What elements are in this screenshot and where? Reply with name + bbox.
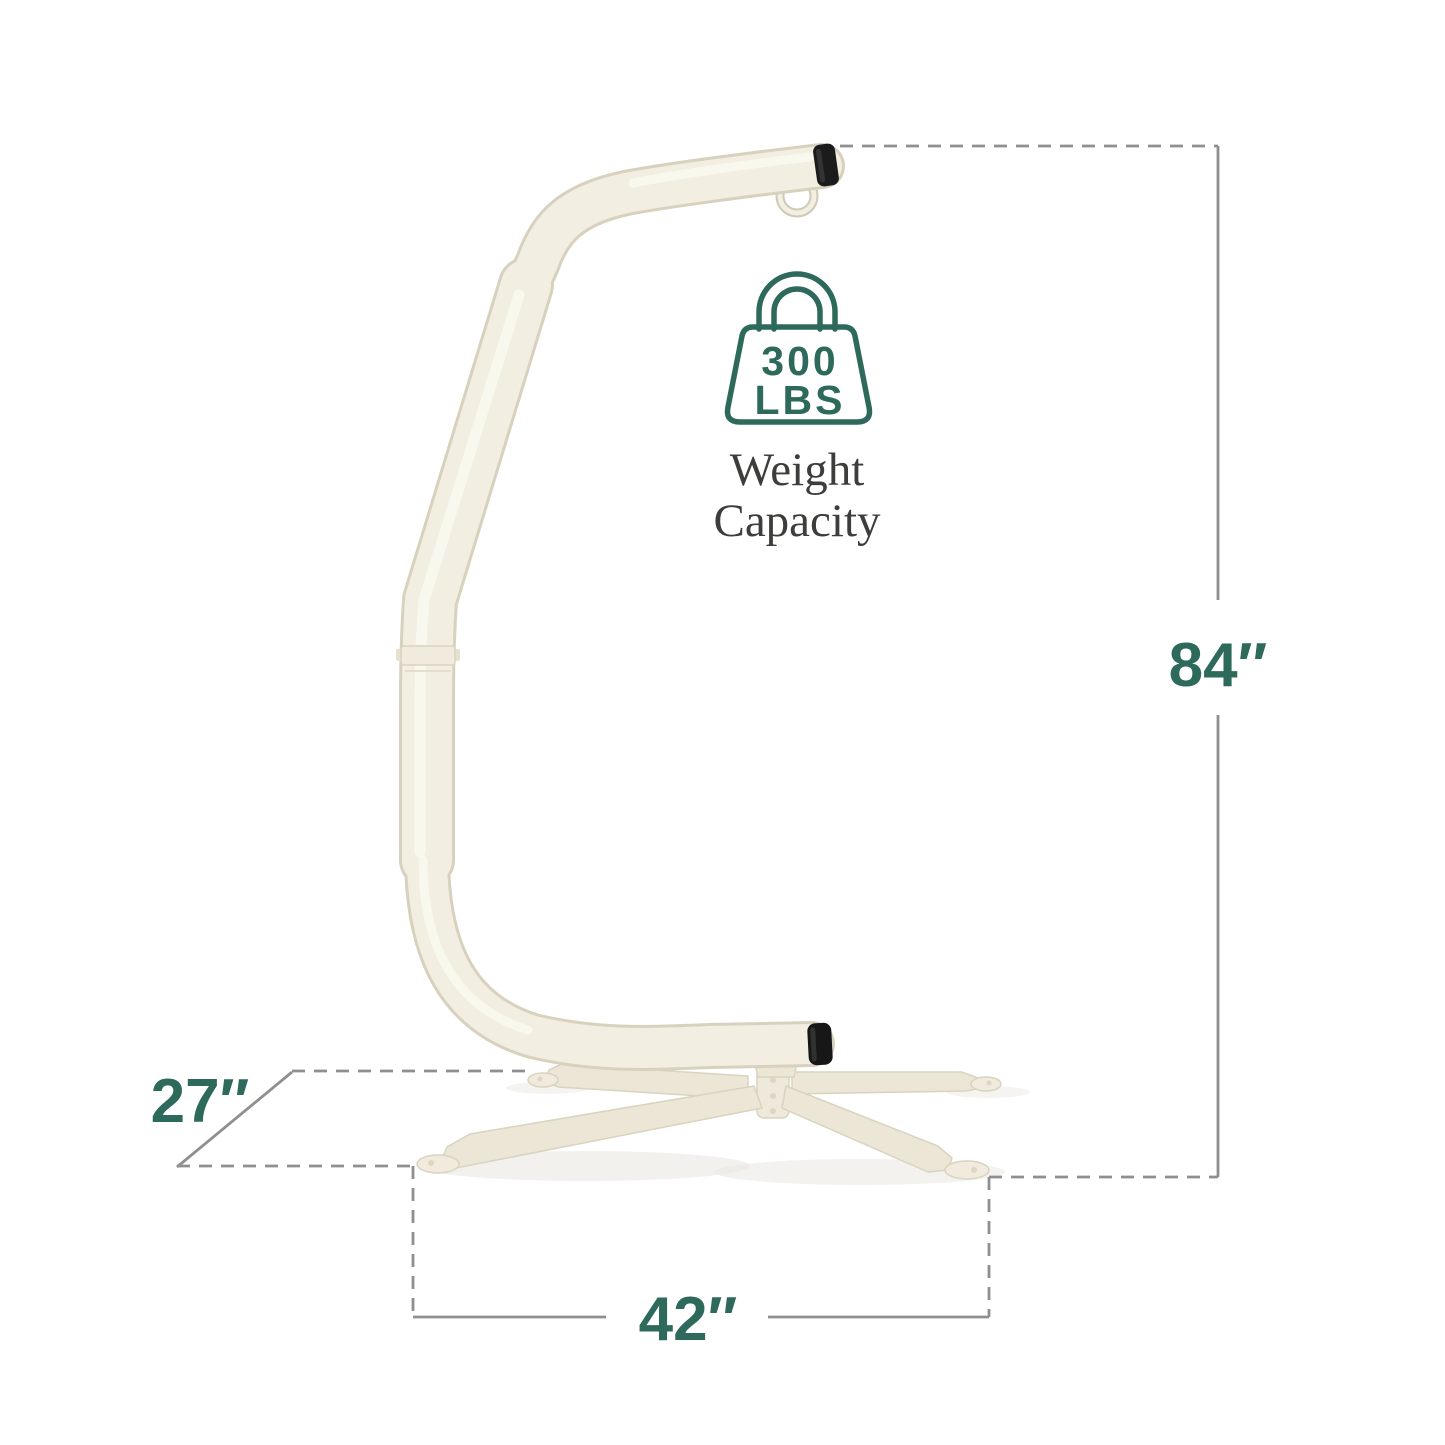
stand-frame xyxy=(420,157,822,1048)
caption-line-2: Capacity xyxy=(713,495,881,547)
foot-bolt-hole xyxy=(987,1081,992,1086)
foot-bolt-hole xyxy=(971,1167,977,1173)
c-stand-illustration xyxy=(396,143,1030,1185)
base-foot-pad xyxy=(945,1161,989,1179)
product-dimension-diagram: 84″ 42″ 27″ 300 LBS Weight xyxy=(0,0,1445,1445)
base-foot-pad xyxy=(528,1073,558,1087)
diagram-canvas: 84″ 42″ 27″ 300 LBS Weight xyxy=(0,0,1445,1445)
base-foot-pad xyxy=(971,1077,1001,1091)
base-foot-pad xyxy=(417,1155,459,1173)
bottom-end-cap xyxy=(807,1022,833,1065)
caption-line-1: Weight xyxy=(730,444,865,496)
height-dimension: 84″ xyxy=(840,146,1267,1177)
hub-bolt xyxy=(770,1108,776,1114)
width-dimension: 42″ xyxy=(413,1166,989,1354)
weight-capacity-badge: 300 LBS Weight Capacity xyxy=(713,274,881,547)
foot-bolt-hole xyxy=(538,1077,543,1082)
hub-bolt xyxy=(770,1077,776,1083)
foot-bolt-hole xyxy=(428,1160,434,1166)
width-label: 42″ xyxy=(639,1285,738,1354)
weight-unit: LBS xyxy=(755,377,846,423)
height-label: 84″ xyxy=(1169,631,1268,700)
depth-label: 27″ xyxy=(151,1067,250,1136)
base-leg xyxy=(792,1072,982,1094)
hub-bolt xyxy=(770,1093,776,1099)
weight-capacity-icon: 300 LBS xyxy=(728,274,870,423)
